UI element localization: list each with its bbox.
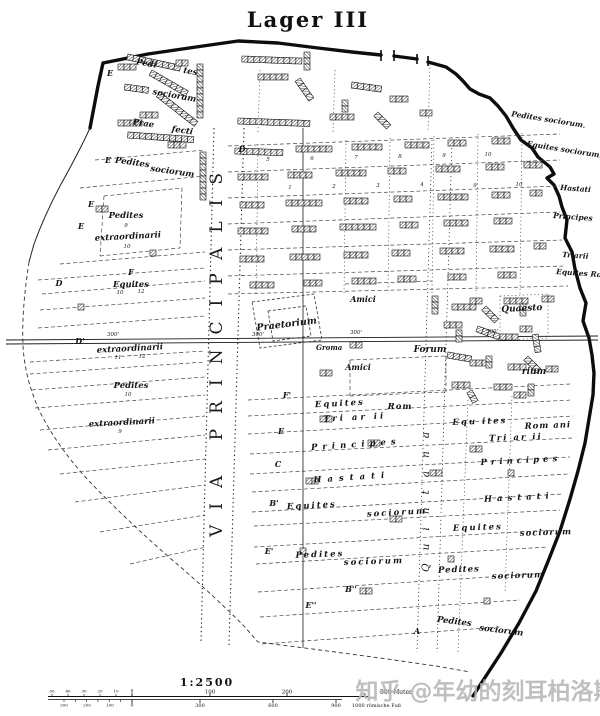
- barracks-strip: [340, 224, 376, 230]
- map-label: Equites: [452, 522, 503, 534]
- barracks-unit: [316, 200, 322, 206]
- barracks-unit: [256, 174, 262, 180]
- barracks-strip: [238, 228, 268, 234]
- block-number: 1: [288, 185, 292, 191]
- barracks-unit: [330, 114, 336, 120]
- row-letter: E: [77, 221, 85, 231]
- barracks-strip: [240, 256, 264, 262]
- barracks-unit: [411, 142, 417, 148]
- barracks-unit: [302, 254, 308, 260]
- barracks-unit: [500, 384, 506, 390]
- plot-line: [75, 485, 205, 502]
- barracks-unit: [342, 114, 348, 120]
- map-title: Lager III: [247, 7, 369, 32]
- barracks-unit: [197, 76, 203, 82]
- map-label: Equ ites: [451, 416, 507, 428]
- plot-line: [35, 395, 205, 408]
- barracks-unit: [458, 382, 464, 388]
- row-letter: B': [268, 498, 278, 508]
- map-label: Hastati: [559, 183, 592, 194]
- plot-line: [428, 64, 430, 132]
- barracks-strip: [520, 326, 532, 332]
- barracks-unit: [197, 70, 203, 76]
- barracks-unit: [494, 384, 500, 390]
- barracks-unit: [375, 85, 382, 92]
- map-label: Pedites: [294, 549, 344, 561]
- barracks-unit: [254, 56, 260, 62]
- barracks-unit: [200, 164, 206, 170]
- barracks-unit: [398, 250, 404, 256]
- barracks-unit: [130, 85, 137, 92]
- barracks-unit: [444, 194, 450, 200]
- barracks-strip: [176, 60, 188, 66]
- barracks-unit: [340, 224, 346, 230]
- barracks-unit: [440, 248, 446, 254]
- barracks-unit: [510, 272, 516, 278]
- barracks-unit: [396, 96, 402, 102]
- barracks-unit: [320, 370, 326, 376]
- watermark: 知乎 @年幼的刻耳柏洛斯: [355, 678, 600, 705]
- barracks-strip: [432, 296, 438, 314]
- barracks-strip: [390, 96, 408, 102]
- block-number: 3: [376, 183, 380, 189]
- barracks-unit: [470, 298, 476, 304]
- barracks-unit: [244, 174, 250, 180]
- scale-number: 20: [97, 689, 103, 694]
- map-label: Tri ar ii: [323, 411, 386, 424]
- barracks-unit: [417, 142, 423, 148]
- barracks-unit: [486, 356, 492, 362]
- scale-number: 0: [131, 703, 134, 709]
- barracks-unit: [500, 334, 506, 340]
- map-label: Equites: [286, 500, 337, 513]
- barracks-strip: [140, 112, 158, 118]
- barracks-strip: [444, 322, 462, 328]
- block-number: 10: [117, 290, 124, 296]
- barracks-strip: [392, 250, 410, 256]
- barracks-unit: [452, 382, 458, 388]
- barracks-unit: [534, 243, 540, 249]
- barracks-unit: [498, 272, 504, 278]
- barracks-unit: [136, 86, 143, 93]
- barracks-unit: [354, 170, 360, 176]
- barracks-unit: [370, 224, 376, 230]
- barracks-unit: [197, 94, 203, 100]
- barracks-unit: [363, 84, 370, 91]
- barracks-strip: [438, 194, 468, 200]
- barracks-unit: [358, 278, 364, 284]
- barracks-unit: [460, 274, 466, 280]
- barracks-unit: [286, 200, 292, 206]
- barracks-unit: [454, 140, 460, 146]
- plot-line: [333, 70, 335, 132]
- barracks-strip: [352, 144, 382, 150]
- barracks-unit: [356, 252, 362, 258]
- plot-line: [262, 627, 500, 644]
- barracks-unit: [197, 82, 203, 88]
- barracks-unit: [432, 302, 438, 308]
- barracks-strip: [448, 274, 466, 280]
- barracks-unit: [423, 142, 429, 148]
- barracks-strip: [200, 152, 206, 200]
- row-letter: E'': [305, 600, 317, 610]
- barracks-unit: [304, 64, 310, 70]
- barracks-unit: [250, 118, 256, 124]
- scale-number: 200: [282, 690, 293, 696]
- barracks-unit: [456, 322, 462, 328]
- barracks-unit: [240, 202, 246, 208]
- barracks-unit: [175, 135, 181, 141]
- scale-number: 600: [268, 703, 278, 709]
- barracks-strip: [498, 272, 516, 278]
- barracks-unit: [146, 112, 152, 118]
- barracks-unit: [506, 218, 512, 224]
- barracks-unit: [271, 149, 277, 155]
- barracks-unit: [118, 64, 124, 70]
- barracks-strip: [344, 198, 368, 204]
- barracks-unit: [272, 57, 278, 63]
- barracks-unit: [492, 192, 498, 198]
- barracks-strip: [436, 166, 460, 172]
- barracks-unit: [246, 202, 252, 208]
- map-label: Quaesto: [501, 303, 543, 315]
- block-number: 8: [398, 154, 402, 160]
- barracks-unit: [370, 144, 376, 150]
- map-label: Rom: [387, 402, 413, 412]
- barracks-unit: [197, 106, 203, 112]
- barracks-unit: [200, 176, 206, 182]
- barracks-strip: [447, 352, 472, 362]
- barracks-unit: [458, 304, 464, 310]
- barracks-blocks: [78, 52, 558, 604]
- barracks-unit: [118, 120, 124, 126]
- row-letter: E': [264, 546, 274, 556]
- plot-line: [100, 196, 104, 256]
- barracks-unit: [552, 366, 558, 372]
- scale-ratio: 1:2500: [180, 676, 234, 689]
- row-letter: D': [74, 336, 84, 346]
- barracks-unit: [250, 174, 256, 180]
- barracks-unit: [496, 246, 502, 252]
- barracks-unit: [426, 110, 432, 116]
- map-label: extraordinarii: [97, 342, 164, 355]
- barracks-unit: [96, 206, 102, 212]
- barracks-strip: [482, 306, 499, 323]
- barracks-strip: [534, 243, 546, 249]
- barracks-unit: [542, 296, 548, 302]
- barracks-unit: [310, 200, 316, 206]
- barracks-unit: [286, 120, 292, 126]
- barracks-unit: [298, 226, 304, 232]
- barracks-unit: [310, 226, 316, 232]
- plot-line: [252, 474, 568, 492]
- scale-number: 40: [65, 689, 71, 694]
- block-number: 4: [419, 182, 424, 188]
- barracks-unit: [252, 202, 258, 208]
- barracks-strip: [290, 254, 320, 260]
- barracks-unit: [140, 133, 146, 139]
- barracks-unit: [152, 134, 158, 140]
- plot-line: [130, 547, 206, 564]
- barracks-unit: [244, 118, 250, 124]
- barracks-unit: [158, 134, 164, 140]
- row-letter: F': [282, 390, 291, 400]
- barracks-unit: [308, 254, 314, 260]
- plot-line: [476, 134, 478, 294]
- barracks-unit: [376, 144, 382, 150]
- barracks-unit: [400, 168, 406, 174]
- barracks-strip: [492, 192, 510, 198]
- barracks-unit: [292, 120, 298, 126]
- barracks-unit: [402, 96, 408, 102]
- barracks-strip: [467, 390, 478, 403]
- barracks-unit: [394, 168, 400, 174]
- scale-number: 50: [49, 689, 55, 694]
- barracks-unit: [448, 274, 454, 280]
- scale-number: 300: [60, 703, 68, 708]
- map-label: Amici: [349, 294, 376, 304]
- barracks-unit: [492, 164, 498, 170]
- scale-number: 30: [81, 689, 87, 694]
- barracks-unit: [350, 342, 356, 348]
- barracks-unit: [304, 58, 310, 64]
- barracks-unit: [276, 74, 282, 80]
- barracks-strip: [320, 370, 332, 376]
- map-label: Pedi: [134, 57, 157, 71]
- barracks-unit: [270, 74, 276, 80]
- block-number: 9: [118, 429, 122, 435]
- barracks-unit: [197, 112, 203, 118]
- barracks-strip: [542, 296, 554, 302]
- plot-line: [344, 140, 346, 294]
- barracks-strip: [296, 146, 332, 152]
- barracks-strip: [430, 470, 442, 476]
- barracks-strip: [352, 278, 376, 284]
- barracks-strip: [78, 304, 84, 310]
- barracks-strip: [394, 196, 412, 202]
- barracks-unit: [370, 278, 376, 284]
- barracks-unit: [506, 334, 512, 340]
- barracks-unit: [200, 194, 206, 200]
- barracks-unit: [352, 278, 358, 284]
- barracks-unit: [344, 198, 350, 204]
- barracks-unit: [256, 228, 262, 234]
- barracks-unit: [404, 250, 410, 256]
- scale-number: 100: [205, 690, 216, 696]
- excavation-boundary: [23, 128, 470, 672]
- block-number: 10: [516, 182, 523, 188]
- barracks-unit: [358, 144, 364, 150]
- barracks-strip: [388, 168, 406, 174]
- barracks-unit: [398, 276, 404, 282]
- barracks-unit: [310, 280, 316, 286]
- barracks-unit: [252, 256, 258, 262]
- barracks-unit: [265, 149, 271, 155]
- scale-number: 100: [106, 703, 114, 708]
- barracks-unit: [432, 308, 438, 314]
- barracks-unit: [336, 114, 342, 120]
- barracks-unit: [476, 360, 482, 366]
- barracks-unit: [304, 226, 310, 232]
- barracks-unit: [352, 144, 358, 150]
- barracks-strip: [444, 220, 468, 226]
- block-number: 10: [124, 244, 131, 250]
- barracks-strip: [398, 276, 416, 282]
- barracks-unit: [394, 196, 400, 202]
- barracks-unit: [258, 256, 264, 262]
- barracks-unit: [520, 326, 526, 332]
- barracks-unit: [256, 119, 262, 125]
- barracks-unit: [296, 254, 302, 260]
- barracks-unit: [197, 88, 203, 94]
- barracks-unit: [476, 446, 482, 452]
- barracks-strip: [304, 280, 322, 286]
- barracks-unit: [348, 114, 354, 120]
- barracks-unit: [142, 87, 149, 94]
- barracks-strip: [250, 282, 274, 288]
- barracks-unit: [298, 120, 304, 126]
- barracks-unit: [200, 170, 206, 176]
- barracks-unit: [470, 360, 476, 366]
- barracks-unit: [456, 220, 462, 226]
- block-number: 9: [473, 183, 477, 189]
- barracks-strip: [374, 112, 391, 129]
- barracks-unit: [528, 384, 534, 390]
- barracks-unit: [78, 304, 84, 310]
- scale-number: 10: [113, 689, 119, 694]
- plot-line: [38, 316, 205, 328]
- barracks-unit: [292, 200, 298, 206]
- map-label: sociorum: [150, 164, 195, 180]
- plot-line: [432, 136, 434, 294]
- barracks-unit: [530, 162, 536, 168]
- barracks-unit: [266, 57, 272, 63]
- barracks-unit: [304, 52, 310, 58]
- barracks-strip: [448, 140, 466, 146]
- barracks-unit: [146, 133, 152, 139]
- plot-line: [38, 268, 205, 280]
- barracks-unit: [460, 140, 466, 146]
- barracks-strip: [342, 100, 348, 112]
- barracks-unit: [536, 162, 542, 168]
- barracks-unit: [410, 276, 416, 282]
- barracks-unit: [304, 280, 310, 286]
- barracks-unit: [238, 118, 244, 124]
- barracks-unit: [280, 119, 286, 125]
- barracks-unit: [342, 170, 348, 176]
- barracks-unit: [404, 276, 410, 282]
- plot-line: [228, 286, 568, 294]
- map-label: Principes: [310, 437, 401, 453]
- barracks-unit: [405, 142, 411, 148]
- barracks-strip: [452, 382, 470, 388]
- barracks-unit: [470, 304, 476, 310]
- map-label: Pedites: [437, 564, 480, 575]
- barracks-unit: [498, 164, 504, 170]
- barracks-unit: [302, 146, 308, 152]
- barracks-unit: [406, 222, 412, 228]
- barracks-unit: [124, 84, 131, 91]
- map-label: sociorum: [344, 556, 404, 568]
- barracks-unit: [134, 132, 140, 138]
- map-label: Tri ar ii: [489, 432, 543, 444]
- barracks-unit: [536, 190, 542, 196]
- barracks-unit: [436, 166, 442, 172]
- barracks-unit: [390, 96, 396, 102]
- barracks-unit: [320, 146, 326, 152]
- barracks-unit: [514, 392, 520, 398]
- map-label: Principes: [479, 454, 561, 468]
- barracks-unit: [456, 330, 462, 336]
- map-label: extraordinarii: [89, 416, 156, 429]
- barracks-strip: [242, 56, 302, 64]
- barracks-unit: [256, 282, 262, 288]
- barracks-strip: [258, 74, 288, 80]
- barracks-unit: [494, 218, 500, 224]
- barracks-strip: [400, 222, 418, 228]
- barracks-unit: [200, 158, 206, 164]
- plot-line: [180, 188, 182, 248]
- plot-line: [30, 362, 205, 374]
- barracks-strip: [494, 218, 512, 224]
- barracks-unit: [456, 194, 462, 200]
- barracks-unit: [520, 392, 526, 398]
- barracks-strip: [238, 118, 310, 127]
- barracks-strip: [197, 64, 203, 118]
- barracks-unit: [508, 246, 514, 252]
- map-label: sociorum: [492, 570, 545, 582]
- plot-line: [60, 459, 205, 474]
- via-principalis-label: VIA PRINCIPALIS: [207, 158, 227, 538]
- barracks-strip: [295, 78, 314, 101]
- barracks-unit: [446, 248, 452, 254]
- block-number: 9: [124, 223, 128, 229]
- barracks-unit: [498, 138, 504, 144]
- block-number: 300': [107, 332, 119, 338]
- barracks-unit: [454, 274, 460, 280]
- barracks-unit: [366, 588, 372, 594]
- barracks-unit: [246, 256, 252, 262]
- barracks-strip: [470, 446, 482, 452]
- barracks-unit: [342, 106, 348, 112]
- barracks-unit: [412, 222, 418, 228]
- row-letter: D: [238, 144, 246, 154]
- row-letter: F: [127, 267, 135, 277]
- barracks-unit: [508, 470, 514, 476]
- block-number: 12: [138, 289, 145, 295]
- barracks-unit: [504, 138, 510, 144]
- barracks-unit: [502, 246, 508, 252]
- barracks-unit: [300, 172, 306, 178]
- barracks-unit: [504, 272, 510, 278]
- row-letter: A: [413, 626, 420, 636]
- block-number: 12: [139, 354, 146, 360]
- plot-line: [100, 248, 180, 256]
- barracks-unit: [540, 243, 546, 249]
- map-label: Triarii: [562, 250, 589, 261]
- barracks-unit: [140, 112, 146, 118]
- barracks-unit: [356, 198, 362, 204]
- barracks-unit: [464, 304, 470, 310]
- barracks-unit: [486, 164, 492, 170]
- block-number: 5: [266, 157, 270, 163]
- scale-number: 900: [331, 703, 341, 709]
- barracks-unit: [200, 182, 206, 188]
- barracks-unit: [180, 142, 186, 148]
- barracks-unit: [524, 162, 530, 168]
- barracks-unit: [448, 556, 454, 562]
- plot-line: [260, 600, 520, 617]
